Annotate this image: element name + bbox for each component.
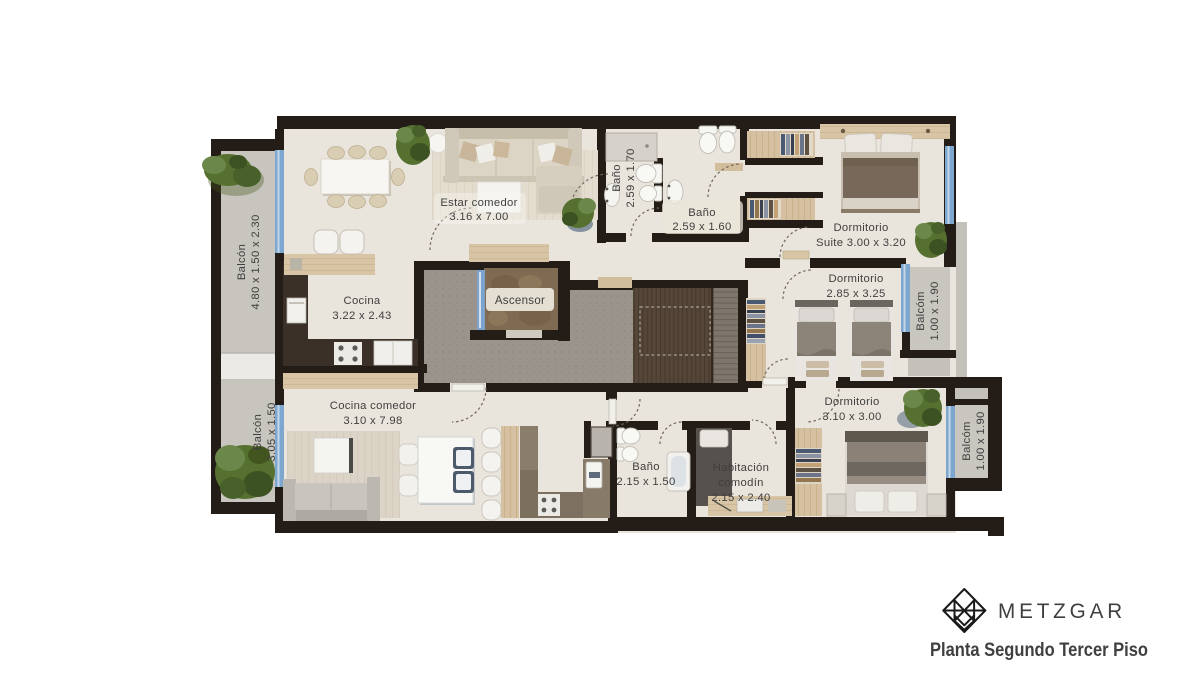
- svg-text:3.22 x 2.43: 3.22 x 2.43: [332, 310, 391, 322]
- svg-text:Cocina: Cocina: [344, 295, 381, 307]
- svg-text:Balcón: Balcón: [236, 244, 248, 280]
- svg-text:2.15 x 1.50: 2.15 x 1.50: [616, 476, 675, 488]
- svg-text:2.15 x 2.40: 2.15 x 2.40: [711, 492, 770, 504]
- svg-text:1.00 x 1.90: 1.00 x 1.90: [975, 411, 987, 470]
- svg-text:Habitación: Habitación: [713, 462, 769, 474]
- svg-text:Suite 3.00 x 3.20: Suite 3.00 x 3.20: [816, 237, 906, 249]
- svg-text:4.80 x 1.50 x 2.30: 4.80 x 1.50 x 2.30: [250, 214, 262, 309]
- svg-text:2.59 x 1.60: 2.59 x 1.60: [672, 221, 731, 233]
- svg-text:Ascensor: Ascensor: [495, 295, 545, 307]
- svg-text:3.10 x 7.98: 3.10 x 7.98: [343, 415, 402, 427]
- svg-text:Balcón: Balcón: [252, 414, 264, 450]
- svg-text:METZGAR: METZGAR: [998, 599, 1126, 623]
- svg-text:3.05 x 1.50: 3.05 x 1.50: [266, 402, 278, 461]
- svg-text:Baño: Baño: [632, 461, 660, 473]
- svg-text:comodín: comodín: [718, 477, 763, 489]
- svg-text:Dormitorio: Dormitorio: [824, 396, 879, 408]
- svg-text:3.10 x 3.00: 3.10 x 3.00: [822, 411, 881, 423]
- svg-text:2.85 x 3.25: 2.85 x 3.25: [826, 288, 885, 300]
- svg-text:Baño: Baño: [611, 164, 623, 192]
- svg-text:1.00 x 1.90: 1.00 x 1.90: [929, 281, 941, 340]
- svg-text:2.59 x 1.70: 2.59 x 1.70: [625, 148, 637, 207]
- svg-text:Baño: Baño: [688, 207, 716, 219]
- svg-text:Planta Segundo Tercer Piso: Planta Segundo Tercer Piso: [930, 639, 1148, 661]
- svg-text:Dormitorio: Dormitorio: [828, 273, 883, 285]
- svg-text:Estar comedor: Estar comedor: [440, 197, 517, 209]
- svg-text:Cocina comedor: Cocina comedor: [330, 400, 416, 412]
- svg-text:3.16 x 7.00: 3.16 x 7.00: [449, 211, 508, 223]
- svg-text:Dormitorio: Dormitorio: [833, 222, 888, 234]
- svg-text:Balcóm: Balcóm: [961, 421, 973, 460]
- svg-text:Balcóm: Balcóm: [915, 291, 927, 330]
